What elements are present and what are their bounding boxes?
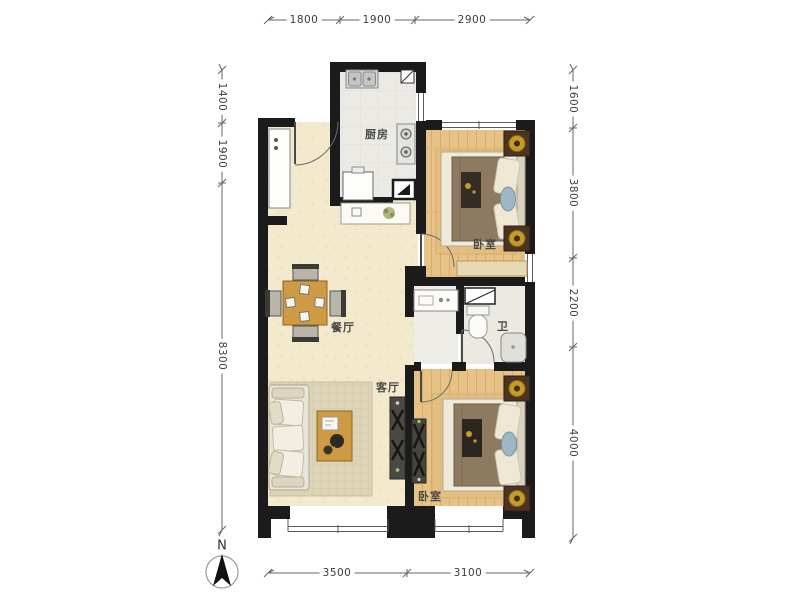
fridge <box>343 167 373 200</box>
console-table <box>341 203 410 224</box>
bedroom-top-window <box>442 120 516 130</box>
dimension-line-top <box>264 16 534 24</box>
living-bay-window <box>288 519 388 533</box>
kitchen-window <box>416 93 426 121</box>
floor-plan: 厨房 卧室 餐厅 卫 客厅 卧室 1800 1900 2900 1400 190… <box>0 0 800 600</box>
dimension-line-bottom <box>264 569 534 577</box>
bedroom-bay-window <box>435 519 503 533</box>
wardrobe <box>412 419 426 483</box>
sofa <box>268 385 309 490</box>
hall-counter <box>414 290 458 311</box>
kitchen-sink <box>346 70 378 88</box>
stove <box>397 124 415 164</box>
vanity <box>465 288 495 304</box>
kitchen-corner-shelf <box>401 70 414 83</box>
bed-bottom <box>443 398 525 492</box>
entry-cabinet <box>269 129 290 208</box>
floor-plan-drawing <box>0 0 800 600</box>
toilet <box>467 306 489 338</box>
dimension-line-left <box>218 64 226 536</box>
dimension-line-right <box>569 64 577 544</box>
shower <box>501 333 526 362</box>
bedroom-top-bench <box>457 261 527 276</box>
north-arrow <box>206 554 238 588</box>
tv-cabinet <box>390 397 405 479</box>
kitchen-door <box>393 180 415 199</box>
coffee-table <box>317 411 352 461</box>
